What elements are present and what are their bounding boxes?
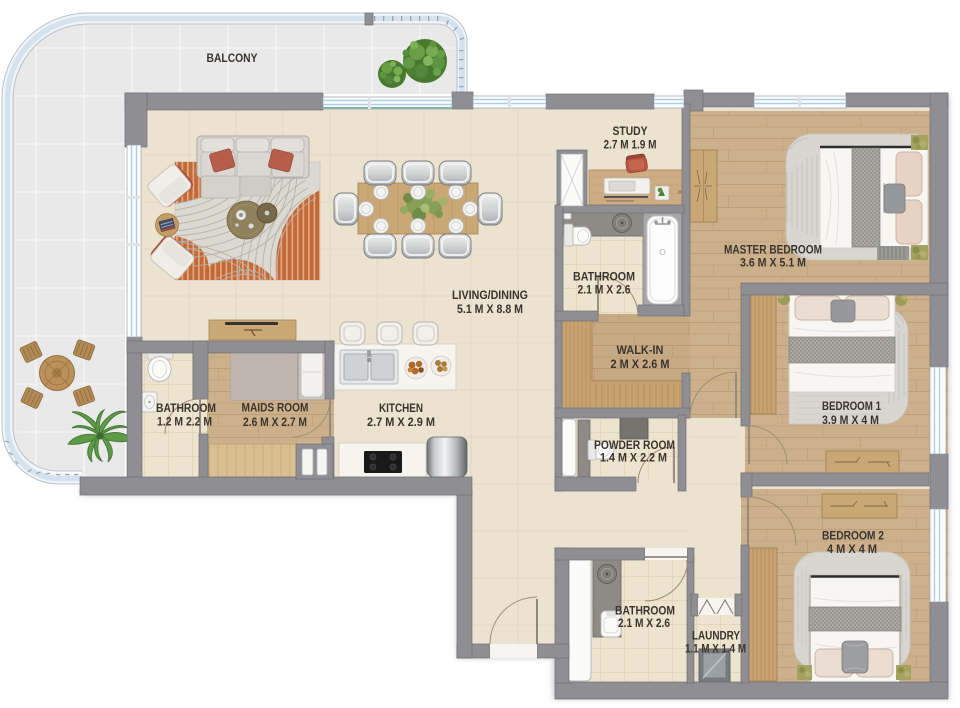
svg-text:2.6 M X 2.7 M: 2.6 M X 2.7 M xyxy=(243,417,307,429)
svg-text:1.1 M X 1.4 M: 1.1 M X 1.4 M xyxy=(685,644,746,656)
svg-text:POWDER ROOM: POWDER ROOM xyxy=(594,440,675,452)
svg-text:2.1 M X 2.6: 2.1 M X 2.6 xyxy=(618,618,670,630)
svg-text:2.7 M X 2.9 M: 2.7 M X 2.9 M xyxy=(367,417,435,429)
svg-text:STUDY: STUDY xyxy=(613,126,648,138)
svg-text:MASTER BEDROOM: MASTER BEDROOM xyxy=(724,243,822,257)
svg-text:LIVING/DINING: LIVING/DINING xyxy=(452,290,528,302)
svg-text:LAUNDRY: LAUNDRY xyxy=(692,631,740,643)
svg-text:2.7 M 1.9 M: 2.7 M 1.9 M xyxy=(604,140,657,152)
svg-text:MAIDS ROOM: MAIDS ROOM xyxy=(242,403,309,415)
svg-text:BATHROOM: BATHROOM xyxy=(156,403,216,415)
svg-text:4 M X 4 M: 4 M X 4 M xyxy=(827,544,877,556)
svg-text:5.1 M X 8.8 M: 5.1 M X 8.8 M xyxy=(457,304,523,316)
svg-text:WALK-IN: WALK-IN xyxy=(617,345,664,357)
svg-text:3.6 M X 5.1 M: 3.6 M X 5.1 M xyxy=(740,258,806,270)
svg-text:2 M X 2.6 M: 2 M X 2.6 M xyxy=(611,359,670,371)
svg-text:2.1 M X 2.6: 2.1 M X 2.6 xyxy=(578,285,631,297)
svg-text:KITCHEN: KITCHEN xyxy=(379,403,423,415)
svg-text:3.9 M X 4 M: 3.9 M X 4 M xyxy=(822,415,879,427)
svg-text:BEDROOM 1: BEDROOM 1 xyxy=(822,401,882,413)
svg-text:BATHROOM: BATHROOM xyxy=(615,606,675,618)
svg-text:1.2 M 2.2 M: 1.2 M 2.2 M xyxy=(157,417,212,429)
svg-text:1.4 M X 2.2 M: 1.4 M X 2.2 M xyxy=(600,453,667,465)
svg-text:BATHROOM: BATHROOM xyxy=(573,272,635,284)
svg-text:BEDROOM 2: BEDROOM 2 xyxy=(822,531,884,543)
svg-text:BALCONY: BALCONY xyxy=(207,53,258,65)
